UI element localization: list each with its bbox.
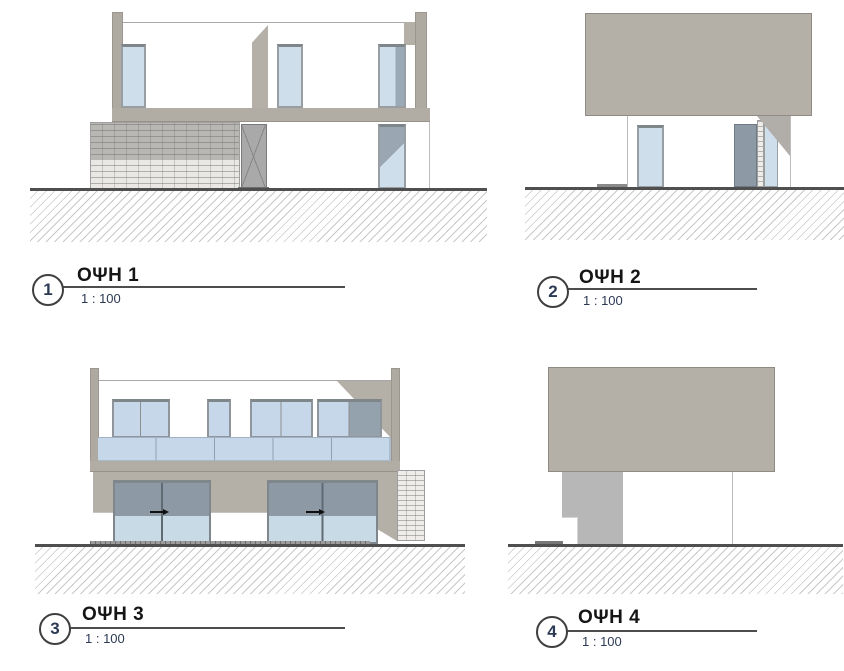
ground-hatch: [30, 191, 487, 242]
view-scale: 1 : 100: [583, 293, 623, 308]
view-number-circle: 3: [39, 613, 71, 645]
elevation-4-view: [490, 355, 844, 600]
elevation-3-view: [0, 355, 490, 600]
view-title: ΟΨΗ 4: [578, 607, 640, 629]
title-line: [564, 630, 757, 632]
balcony-door: [207, 399, 231, 438]
title-line: [67, 627, 345, 629]
mid-wall-return: [252, 25, 268, 109]
view-number: 2: [548, 282, 557, 302]
parapet-post-right: [391, 368, 400, 466]
roof-line: [123, 22, 415, 23]
view-number: 4: [547, 622, 556, 642]
balcony-slab: [90, 461, 400, 472]
wall-right-edge: [732, 472, 733, 544]
ground-hatch: [525, 190, 844, 240]
slide-arrow-2: [306, 511, 320, 513]
upper-window-1: [121, 44, 146, 108]
view-number-circle: 2: [537, 276, 569, 308]
view-number-circle: 1: [32, 274, 64, 306]
roof-line: [99, 380, 391, 381]
view-scale: 1 : 100: [85, 631, 125, 646]
glass-door-left: [637, 125, 664, 188]
view-scale: 1 : 100: [582, 634, 622, 649]
view-number: 1: [43, 280, 52, 300]
view-number-circle: 4: [536, 616, 568, 648]
entrance-gate: [241, 124, 267, 189]
ground-hatch: [508, 547, 843, 594]
upper-window-3: [378, 44, 406, 108]
balcony-slider-3: [317, 399, 382, 438]
slide-arrow-1: [150, 511, 164, 513]
glass-balustrade: [98, 437, 391, 461]
facade-right-edge: [429, 122, 430, 188]
floor-slab-band: [112, 108, 430, 122]
stone-pillar: [397, 470, 425, 541]
ground-window: [378, 124, 406, 189]
pillar-notch: [562, 517, 578, 545]
view-title: ΟΨΗ 2: [579, 267, 641, 289]
ground-hatch: [35, 547, 465, 594]
upper-window-2: [277, 44, 303, 108]
view-number: 3: [50, 619, 59, 639]
upper-volume: [585, 13, 812, 116]
balcony-slider-2: [250, 399, 313, 438]
stone-pier-strip: [757, 120, 764, 187]
balcony-slider-1: [112, 399, 170, 438]
stone-wall-upper: [90, 122, 240, 160]
wall-left-edge: [627, 116, 628, 188]
view-title: ΟΨΗ 3: [82, 604, 144, 626]
elevation-1-view: [0, 0, 490, 245]
glass-door-dark: [734, 124, 757, 187]
elevation-2-view: [490, 0, 844, 245]
parapet-post-right: [415, 12, 427, 109]
view-scale: 1 : 100: [81, 291, 121, 306]
stone-wall-lower: [90, 160, 240, 190]
wall-right-edge: [790, 116, 791, 188]
drawing-sheet: 1 ΟΨΗ 1 1 : 100 2 ΟΨΗ 2 1 : 100 3 ΟΨΗ 3 …: [0, 0, 844, 671]
corner-wall-patch: [404, 22, 415, 45]
upper-volume: [548, 367, 775, 472]
view-title: ΟΨΗ 1: [77, 265, 139, 287]
